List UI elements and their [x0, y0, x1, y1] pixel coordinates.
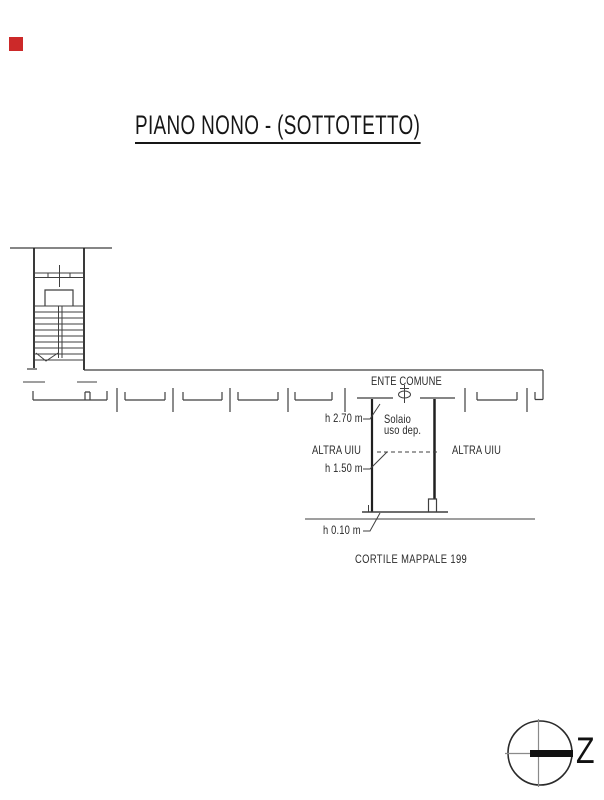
label-height-010: h 0.10 m — [323, 524, 361, 536]
north-letter: Z — [576, 731, 595, 771]
staircase — [10, 248, 112, 370]
label-height-270: h 2.70 m — [325, 412, 363, 424]
label-ente-comune: ENTE COMUNE — [371, 375, 442, 387]
cadastral-plan-page: PIANO NONO - (SOTTOTETTO) — [0, 0, 604, 800]
north-arrow-bar — [530, 750, 573, 757]
label-height-150: h 1.50 m — [325, 462, 363, 474]
label-altra-uiu-right: ALTRA UIU — [452, 444, 501, 456]
label-altra-uiu-left: ALTRA UIU — [312, 444, 361, 456]
floor-plan-drawing — [0, 0, 604, 800]
label-uso-dep: uso dep. — [384, 424, 421, 436]
north-compass-icon — [505, 719, 573, 787]
label-cortile-mappale: CORTILE MAPPALE 199 — [355, 553, 467, 565]
corridor-walls — [23, 370, 543, 412]
